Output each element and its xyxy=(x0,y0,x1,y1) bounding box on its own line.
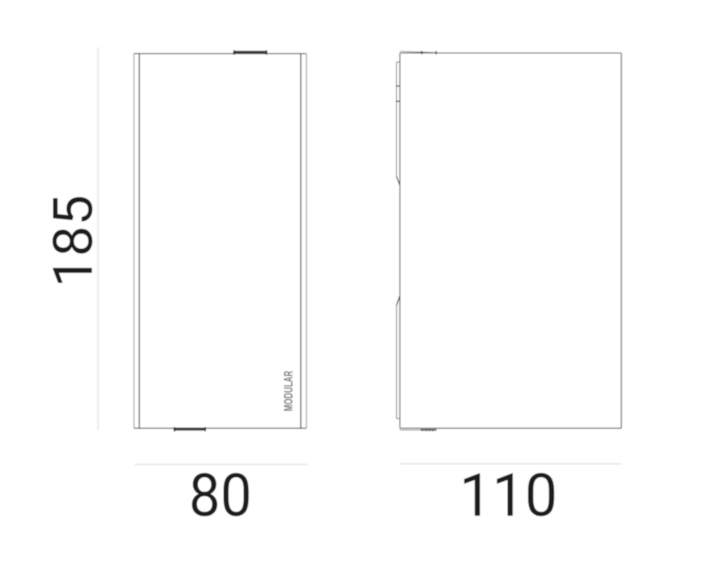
svg-text:MODULAR: MODULAR xyxy=(283,370,296,411)
